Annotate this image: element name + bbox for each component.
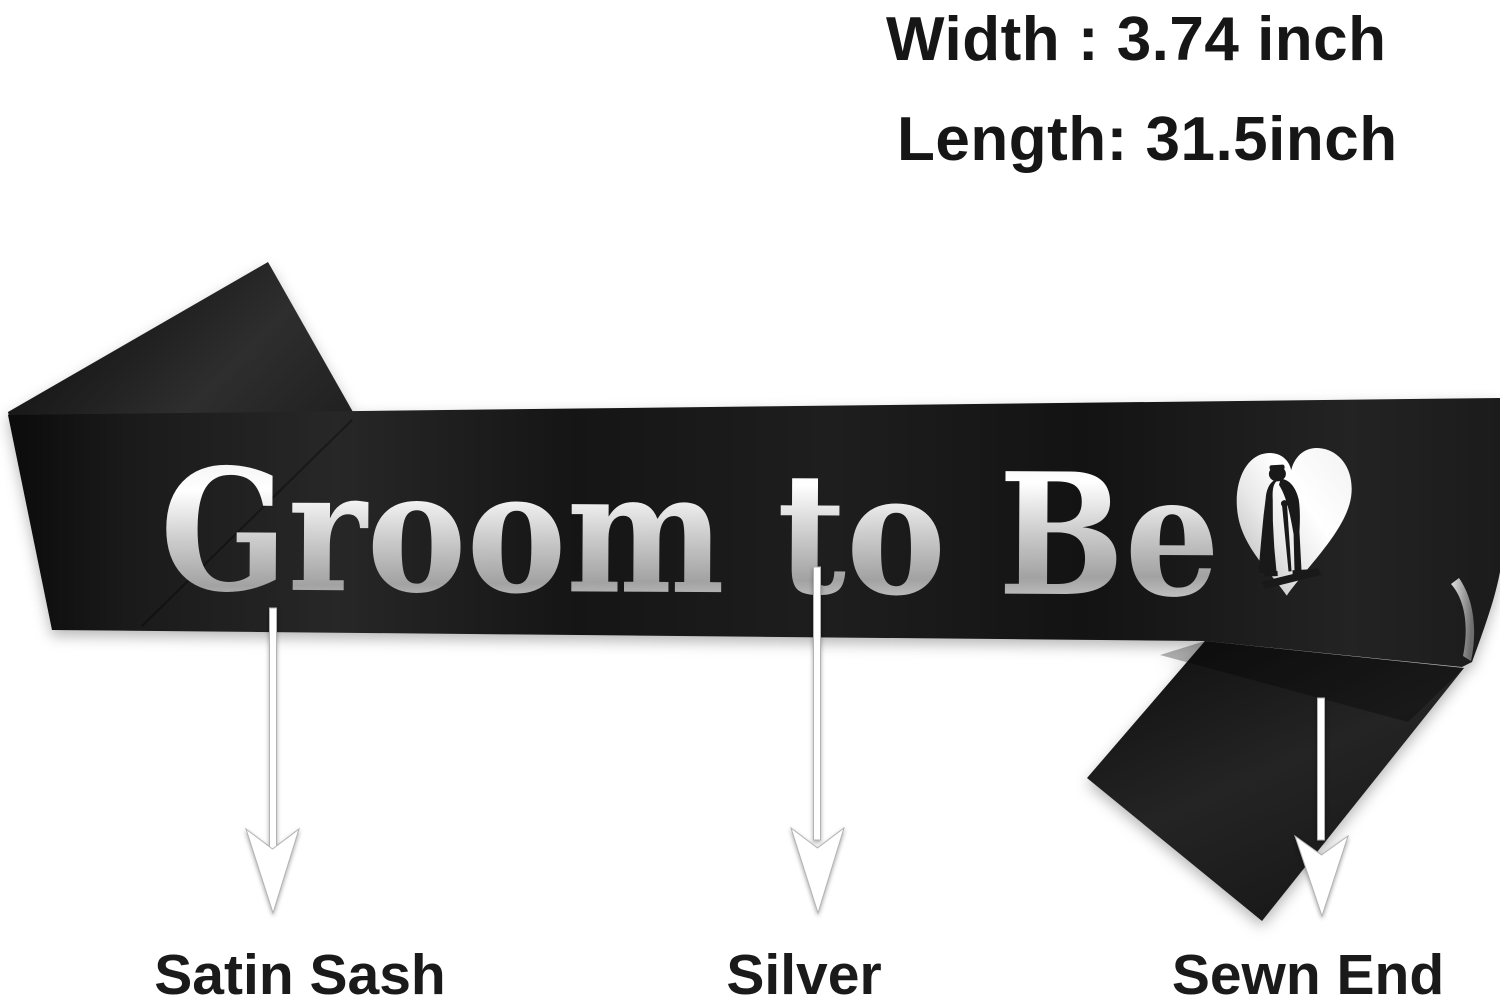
hat — [1269, 465, 1284, 471]
product-image-canvas: Groom to Be — [0, 0, 1500, 1002]
callout-silver: Silver — [726, 942, 881, 1002]
callout-sewn-end: Sewn End — [1172, 942, 1444, 1002]
satin-sash-arrow — [246, 608, 299, 913]
width-dimension-label: Width : 3.74 inch — [886, 4, 1387, 75]
length-dimension-label: Length: 31.5inch — [897, 104, 1398, 175]
sash: Groom to Be — [8, 262, 1500, 921]
callout-satin-sash: Satin Sash — [154, 942, 445, 1002]
sash-text: Groom to Be — [159, 431, 1220, 635]
woman-feet — [1265, 571, 1278, 577]
